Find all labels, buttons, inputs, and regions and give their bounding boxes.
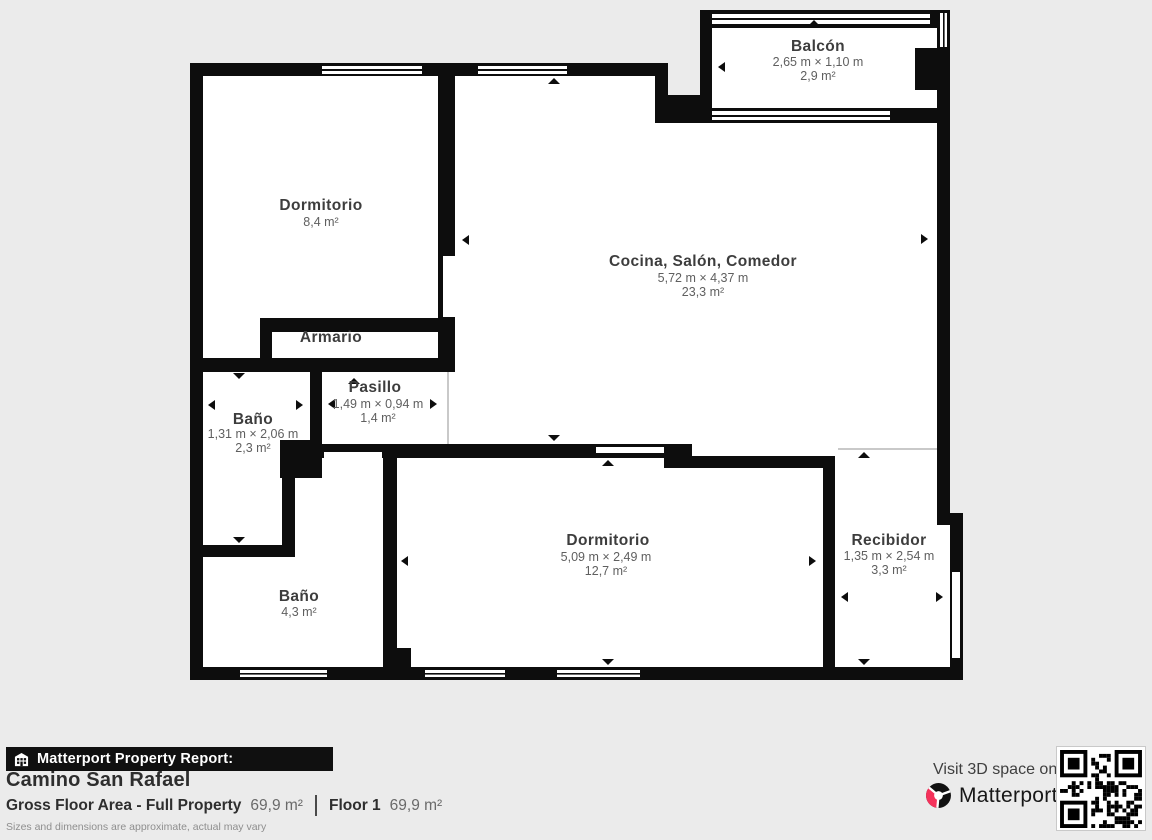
room-dims-dormitorio2: 5,09 m × 2,49 m [561,550,652,564]
room-area-recibidor: 3,3 m² [871,563,906,577]
room-title-cocina: Cocina, Salón, Comedor [609,253,797,270]
property-name: Camino San Rafael [6,769,191,792]
room-dims-recibidor: 1,35 m × 2,54 m [844,549,935,563]
divider [315,795,317,816]
room-title-bano2: Baño [279,588,319,605]
room-area-pasillo: 1,4 m² [360,411,395,425]
room-title-armario: Armario [300,329,362,346]
floorplan: Balcón 2,65 m × 1,10 m 2,9 m² Dormitorio… [0,0,1152,740]
report-bar: Matterport Property Report: [6,747,333,771]
matterport-logo-icon [925,782,952,809]
room-title-recibidor: Recibidor [851,532,926,549]
report-bar-label: Matterport Property Report: [37,751,233,767]
room-title-balcon: Balcón [791,38,845,55]
room-dims-bano1: 1,31 m × 2,06 m [208,427,299,441]
gross-floor-area-value: 69,9 m² [250,797,303,815]
room-title-bano1: Baño [233,411,273,428]
outside-notch [668,58,700,97]
room-area-bano1: 2,3 m² [235,441,270,455]
room-dims-pasillo: 1,49 m × 0,94 m [333,397,424,411]
floor-value: 69,9 m² [390,797,443,815]
matterport-wordmark: Matterport [959,784,1058,808]
visit-3d-space-text: Visit 3D space on [933,761,1041,779]
room-area-dormitorio1: 8,4 m² [303,215,338,229]
room-dims-balcon: 2,65 m × 1,10 m [773,55,864,69]
disclaimer-text: Sizes and dimensions are approximate, ac… [6,821,266,833]
area-summary: Gross Floor Area - Full Property 69,9 m²… [6,795,442,816]
room-area-bano2: 4,3 m² [281,605,316,619]
room-title-dormitorio1: Dormitorio [279,197,362,214]
room-title-dormitorio2: Dormitorio [566,532,649,549]
room-area-cocina: 23,3 m² [682,285,724,299]
matterport-link[interactable]: Matterport™ [925,782,1073,809]
floor-label: Floor 1 [329,797,381,815]
gross-floor-area-label: Gross Floor Area - Full Property [6,797,241,815]
building-icon [14,752,29,767]
room-title-pasillo: Pasillo [349,379,402,396]
room-dims-cocina: 5,72 m × 4,37 m [658,271,749,285]
room-area-dormitorio2: 12,7 m² [585,564,627,578]
qr-code[interactable] [1056,746,1146,831]
room-area-balcon: 2,9 m² [800,69,835,83]
qr-code-pattern [1060,750,1142,828]
